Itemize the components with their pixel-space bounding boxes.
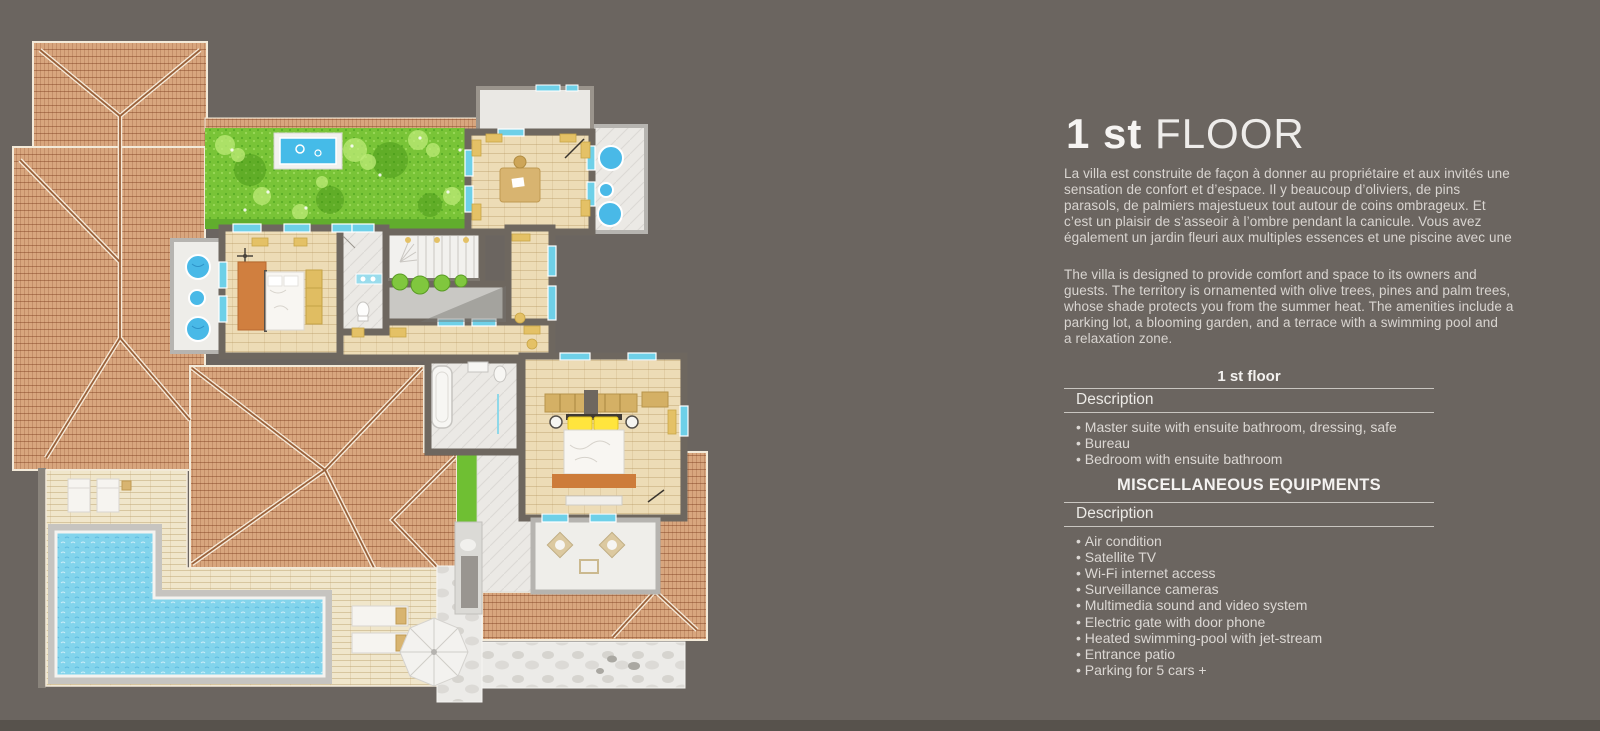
list-item: Heated swimming-pool with jet-stream xyxy=(1076,630,1434,646)
equipment-list: Air conditionSatellite TVWi-Fi internet … xyxy=(1064,533,1434,679)
description-header-1: Description xyxy=(1064,389,1434,412)
list-item: Parking for 5 cars + xyxy=(1076,662,1434,678)
divider xyxy=(1064,526,1434,527)
master-bed-headboard xyxy=(238,262,266,330)
divider xyxy=(1064,412,1434,413)
garden-pool xyxy=(274,133,342,169)
floor-feature-list: Master suite with ensuite bathroom, dres… xyxy=(1064,419,1434,468)
list-item: Bedroom with ensuite bathroom xyxy=(1076,451,1434,467)
paragraph-english: The villa is designed to provide comfort… xyxy=(1064,267,1558,347)
bedroom-terrace xyxy=(533,520,658,592)
corridor xyxy=(508,228,552,328)
rug xyxy=(552,474,636,488)
list-item: Bureau xyxy=(1076,435,1434,451)
info-panel: 1 st FLOOR La villa est construite de fa… xyxy=(1064,112,1558,686)
list-item: Multimedia sound and video system xyxy=(1076,597,1434,613)
pillow xyxy=(568,417,592,430)
description-header-2: Description xyxy=(1064,503,1434,526)
toilet-icon xyxy=(494,366,506,382)
list-item: Entrance patio xyxy=(1076,646,1434,662)
title-rest: FLOOR xyxy=(1155,110,1305,157)
list-item: Wi-Fi internet access xyxy=(1076,565,1434,581)
list-item: Air condition xyxy=(1076,533,1434,549)
list-item: Master suite with ensuite bathroom, dres… xyxy=(1076,419,1434,435)
title-number: 1 st xyxy=(1066,110,1142,157)
floor-caption: 1 st floor xyxy=(1064,368,1434,385)
hedge-strip xyxy=(457,452,477,522)
balcony xyxy=(478,85,592,132)
parasol-icon xyxy=(400,618,468,686)
garden xyxy=(205,128,465,229)
garden-pillar xyxy=(455,522,482,614)
page-title: 1 st FLOOR xyxy=(1066,112,1558,156)
office-terrace xyxy=(592,126,646,232)
list-item: Electric gate with door phone xyxy=(1076,614,1434,630)
list-item: Satellite TV xyxy=(1076,549,1434,565)
bed xyxy=(564,430,624,474)
list-item: Surveillance cameras xyxy=(1076,581,1434,597)
equipment-title: MISCELLANEOUS EQUIPMENTS xyxy=(1064,476,1434,495)
pillow xyxy=(594,417,618,430)
jacuzzi-terrace xyxy=(172,240,224,352)
jacuzzi-tub xyxy=(189,290,205,306)
wardrobe xyxy=(306,270,322,324)
terrace-table xyxy=(580,560,598,573)
bathtub-icon xyxy=(432,366,452,428)
bottom-border-strip xyxy=(0,720,1600,731)
floorplan xyxy=(0,0,1040,731)
paragraph-french: La villa est construite de façon à donne… xyxy=(1064,166,1558,246)
